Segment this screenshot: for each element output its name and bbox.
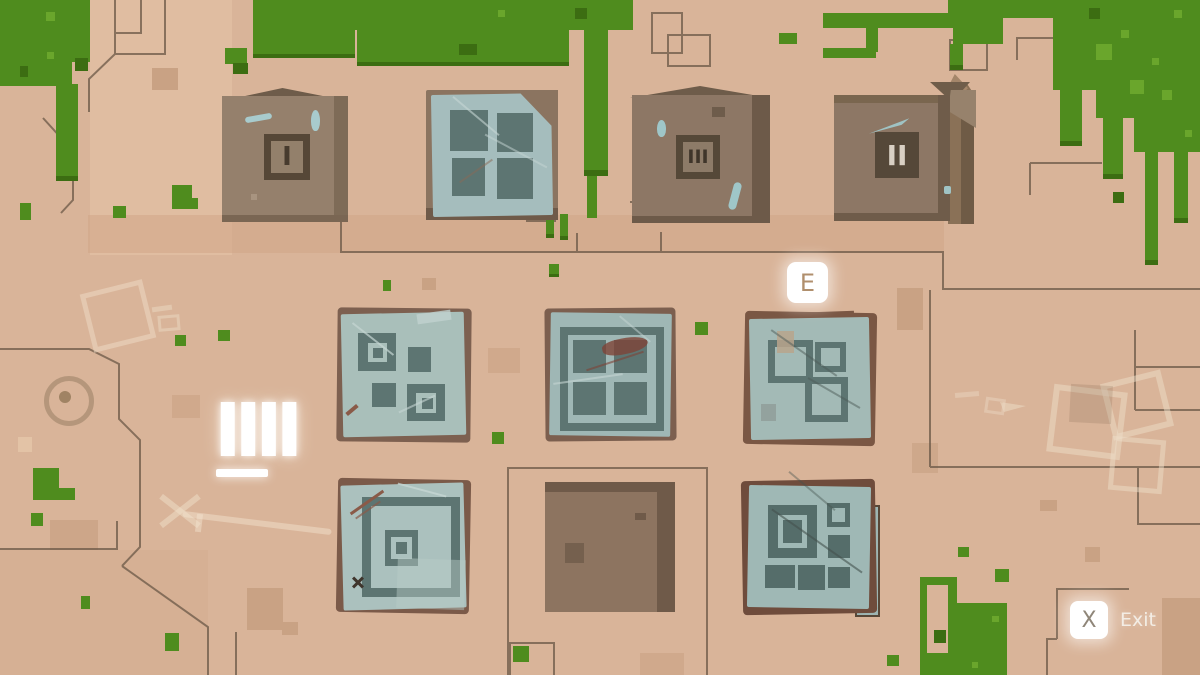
grass-bit xyxy=(225,48,247,64)
crate-bottom-shade xyxy=(834,213,950,221)
paint-drop xyxy=(944,186,951,194)
grass-light-square xyxy=(1174,10,1182,18)
grass-bar xyxy=(823,48,876,58)
numeral-plate: I xyxy=(271,141,303,173)
pattern-pane xyxy=(573,382,606,415)
crate-side-shade xyxy=(334,96,348,222)
crate-bottom-shade xyxy=(632,216,770,223)
grass-bit xyxy=(492,432,504,444)
puzzle-tile-concentric[interactable] xyxy=(337,479,470,613)
grass-drip xyxy=(1145,152,1158,264)
interact-key-prompt[interactable]: E xyxy=(787,262,828,303)
grass-mass xyxy=(1096,90,1200,118)
grass-bit xyxy=(186,198,198,209)
dark-square-decal xyxy=(1069,384,1113,424)
numeral-plate: II xyxy=(875,132,919,178)
pattern-square xyxy=(450,110,488,151)
faint-glyph-decal xyxy=(984,397,1006,416)
grass-light-square xyxy=(46,12,55,21)
grass-light-square xyxy=(1152,58,1159,65)
exit-prompt[interactable]: X Exit xyxy=(1070,601,1200,641)
pattern-hollow-square xyxy=(805,377,848,422)
pattern-ring-core xyxy=(396,542,407,554)
grass-bit xyxy=(165,633,179,651)
paint-drop xyxy=(311,110,320,131)
pattern-square xyxy=(408,347,431,372)
crate-numeral-i[interactable]: I xyxy=(222,88,348,224)
grass-l-shape xyxy=(957,603,1007,675)
pattern-ring-core xyxy=(373,348,383,358)
grass-dark-square xyxy=(233,63,248,74)
pattern-pane xyxy=(614,382,647,415)
pattern-hollow-square xyxy=(815,342,846,372)
crate-bottom-shade xyxy=(222,215,348,222)
paint-drop xyxy=(657,120,666,137)
grass-light-square xyxy=(1096,44,1112,60)
grass-bar xyxy=(823,13,957,28)
speck xyxy=(712,107,725,117)
grass-bit xyxy=(887,655,899,666)
interact-key-label: E xyxy=(800,269,815,297)
tally-underline xyxy=(216,469,268,477)
puzzle-tile-rings[interactable] xyxy=(337,308,471,442)
slot-top-shade xyxy=(545,482,675,492)
grass-bit xyxy=(513,646,529,662)
slot-notch xyxy=(635,513,646,520)
grass-drip xyxy=(1174,152,1188,222)
grass-light-square xyxy=(1121,30,1129,38)
grass-drip xyxy=(587,176,597,218)
grass-light-square xyxy=(972,662,978,668)
tally-marker: IIII xyxy=(214,402,284,482)
grass-drip-tip xyxy=(1145,260,1158,265)
grass-dark-square xyxy=(75,58,88,71)
slot-side-shade xyxy=(657,482,675,612)
grass-drip-tip xyxy=(1060,141,1082,146)
grass-light-square xyxy=(498,10,505,17)
grass-bit xyxy=(779,33,797,44)
crate-numeral-iii[interactable]: III xyxy=(630,86,770,223)
pattern-square xyxy=(828,567,850,588)
grass-dark-square xyxy=(459,44,477,55)
pattern-square xyxy=(497,158,533,199)
pattern-square xyxy=(798,565,825,590)
faint-glyph-decal xyxy=(157,314,180,332)
grass-bit xyxy=(218,330,230,341)
grass-light-square xyxy=(1185,130,1192,137)
grass-dark-square xyxy=(1089,8,1100,19)
target-circle-dot xyxy=(59,391,71,403)
grass-band xyxy=(253,0,355,56)
grass-patch xyxy=(0,0,72,86)
grass-light-square xyxy=(47,52,54,59)
grass-bit xyxy=(113,206,126,218)
puzzle-tile-hollow-squares[interactable] xyxy=(744,312,876,445)
grass-drip-tip xyxy=(950,65,963,70)
pattern-square xyxy=(372,383,396,407)
exit-key[interactable]: X xyxy=(1070,601,1108,639)
crate-open-tile[interactable] xyxy=(426,90,558,222)
grey-patch xyxy=(761,404,776,421)
puzzle-tile-window[interactable] xyxy=(545,308,676,441)
grass-edge xyxy=(357,62,569,66)
grass-band xyxy=(953,0,1003,44)
grass-light-square xyxy=(992,616,999,622)
grass-drip-tip xyxy=(560,236,568,240)
grass-drip-tip xyxy=(1174,218,1188,223)
speck xyxy=(251,194,257,200)
empty-tile-slot[interactable] xyxy=(545,482,675,612)
crate-side-shade xyxy=(938,95,950,221)
grass-bit xyxy=(958,547,969,557)
grass-edge xyxy=(253,54,355,58)
grass-drip-tip xyxy=(56,176,78,181)
pattern-square xyxy=(497,113,533,152)
tally-bars: IIII xyxy=(214,394,296,468)
crate-side-shade xyxy=(752,95,770,223)
crate-fold-light xyxy=(948,90,976,128)
numeral-plate: III xyxy=(683,142,713,172)
grass-drip xyxy=(1060,90,1082,145)
paper-scrap xyxy=(396,558,466,610)
grass-bit xyxy=(175,335,186,346)
grass-drip xyxy=(56,84,78,180)
grass-bit xyxy=(383,280,391,291)
grass-dark-square xyxy=(20,66,28,77)
game-viewport: I III II xyxy=(0,0,1200,675)
pattern-square xyxy=(765,565,795,588)
crate-top-shade xyxy=(834,95,950,103)
grass-drip-tip xyxy=(1103,174,1123,179)
tile-paper xyxy=(341,312,467,438)
crate-numeral-ii[interactable]: II xyxy=(830,80,976,224)
exit-label: Exit xyxy=(1120,609,1156,631)
grass-bit xyxy=(20,203,31,220)
faint-square-decal xyxy=(1108,436,1167,495)
grass-dark-square xyxy=(1113,192,1124,203)
grass-dark-square xyxy=(575,8,587,19)
grass-dark-square xyxy=(934,630,946,643)
grass-light-square xyxy=(1130,80,1144,94)
grass-bit xyxy=(695,322,708,335)
grass-bit xyxy=(81,596,90,609)
slot-inset-square xyxy=(565,543,584,563)
puzzle-tile-mixed-squares[interactable] xyxy=(742,480,876,614)
grass-edge xyxy=(549,274,559,277)
grass-light-square xyxy=(1162,90,1172,100)
grass-bit xyxy=(31,513,43,526)
grass-drip xyxy=(1103,118,1123,178)
grass-drip xyxy=(584,26,608,174)
grass-drip-tip xyxy=(546,234,554,238)
grass-bit xyxy=(50,488,75,500)
exit-key-label: X xyxy=(1081,608,1096,633)
grass-bit xyxy=(995,569,1009,582)
